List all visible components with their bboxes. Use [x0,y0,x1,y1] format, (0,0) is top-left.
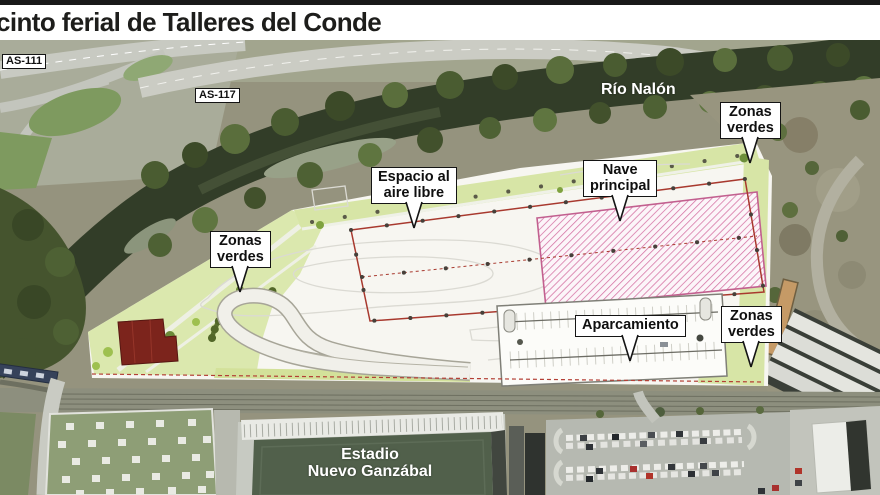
callout-pointer [619,333,641,362]
road-sign-as111: AS-111 [2,54,46,69]
stadium-label: Estadio Nuevo Ganzábal [285,446,455,480]
map: AS-111 AS-117 Río Nalón Zonas verdes Esp… [0,40,880,495]
callout-zonas-verdes-west: Zonas verdes [210,231,271,268]
parking-plan [497,294,727,386]
callout-aparcamiento: Aparcamiento [575,315,686,337]
callout-pointer [739,135,761,164]
callout-pointer [403,200,425,229]
road-sign-as117: AS-117 [195,88,240,103]
callout-zonas-verdes-north: Zonas verdes [720,102,781,139]
callout-zonas-verdes-east: Zonas verdes [721,306,782,343]
callout-pointer [740,339,762,368]
callout-nave-principal: Nave principal [583,160,657,197]
callout-pointer [229,264,251,293]
callout-espacio-aire-libre: Espacio al aire libre [371,167,457,204]
river-label: Río Nalón [601,81,676,99]
callout-pointer [609,193,631,222]
skylight-roof-building [46,409,217,495]
infographic: cinto ferial de Talleres del Conde [0,0,880,495]
page-title: cinto ferial de Talleres del Conde [0,7,381,38]
top-rule [0,0,880,5]
